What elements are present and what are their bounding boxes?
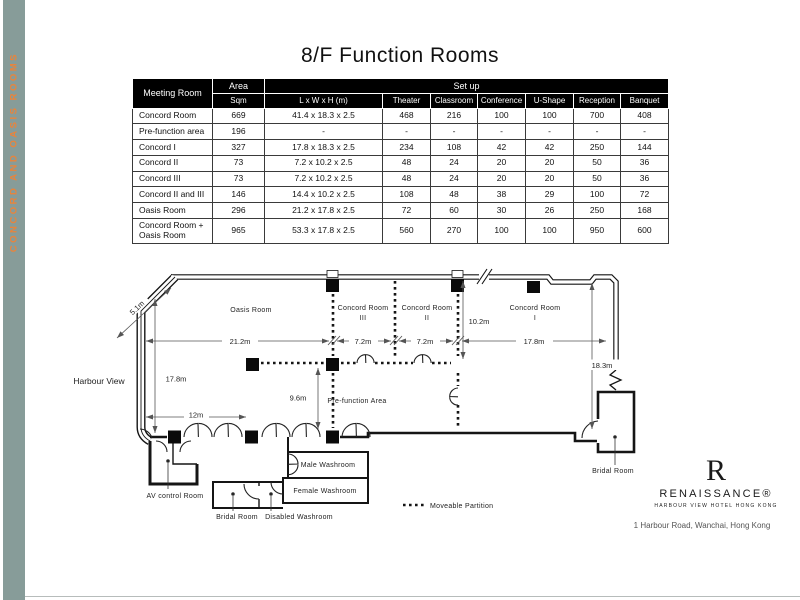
floor-plan: 21.2m 7.2m 7.2m 17.8m 10.2m 17.8m 12m 9.… bbox=[0, 0, 800, 600]
dim-concord-height: 10.2m bbox=[469, 317, 490, 326]
label-av-control-room: AV control Room bbox=[147, 493, 204, 500]
av-room-inner bbox=[173, 441, 197, 464]
partition-door bbox=[450, 388, 458, 405]
logo-r-monogram: R bbox=[650, 456, 782, 486]
bridal-disabled-door bbox=[244, 484, 259, 499]
label-concord-2-num: II bbox=[425, 315, 430, 322]
label-female-washroom: Female Washroom bbox=[293, 488, 356, 495]
bridal-door bbox=[582, 421, 598, 438]
label-concord-room-2: Concord Room bbox=[402, 305, 453, 312]
partition-door bbox=[357, 355, 374, 363]
column bbox=[246, 358, 259, 371]
leaders bbox=[167, 436, 617, 511]
label-concord-1-num: I bbox=[534, 315, 536, 322]
wall-break-squiggle bbox=[610, 370, 621, 390]
dim-left-width: 12m bbox=[189, 411, 204, 420]
wall-top-right bbox=[489, 277, 616, 370]
label-concord-3-num: III bbox=[360, 315, 367, 322]
columns bbox=[168, 279, 540, 444]
double-door bbox=[214, 423, 242, 437]
bridal-right-walls bbox=[598, 392, 634, 452]
page: CONCORD AND OASIS ROOMS 8/F Function Roo… bbox=[0, 0, 800, 600]
dim-concord3-width: 7.2m bbox=[355, 337, 372, 346]
label-concord-room-1: Concord Room bbox=[510, 305, 561, 312]
label-prefunction: Pre-function Area bbox=[327, 398, 386, 405]
label-disabled-washroom: Disabled Washroom bbox=[265, 514, 333, 521]
bottom-divider bbox=[25, 596, 800, 598]
logo-brand-name: RENAISSANCE® bbox=[650, 488, 782, 500]
label-oasis-room: Oasis Room bbox=[230, 307, 272, 314]
window-walls bbox=[141, 269, 621, 441]
column bbox=[168, 431, 181, 444]
washroom-door bbox=[288, 454, 298, 475]
partition-door bbox=[414, 355, 431, 363]
wall-bottom-right bbox=[340, 433, 597, 441]
double-door bbox=[292, 423, 320, 437]
hotel-logo: R RENAISSANCE® HARBOUR VIEW HOTEL HONG K… bbox=[650, 456, 782, 509]
dim-right-height: 18.3m bbox=[592, 361, 613, 370]
dim-oasis-width: 21.2m bbox=[230, 337, 251, 346]
dim-left-height: 17.8m bbox=[166, 375, 187, 384]
bridal-disabled-door bbox=[271, 482, 283, 494]
label-bridal-room: Bridal Room bbox=[216, 514, 258, 521]
dim-concord2-width: 7.2m bbox=[417, 337, 434, 346]
dim-mid-height: 9.6m bbox=[290, 394, 307, 403]
av-door bbox=[156, 441, 167, 452]
wall-tab bbox=[327, 271, 338, 278]
label-bridal-room-right: Bridal Room bbox=[592, 468, 634, 475]
label-harbour-view: Harbour View bbox=[73, 376, 125, 386]
double-door bbox=[184, 423, 212, 437]
label-male-washroom: Male Washroom bbox=[301, 462, 356, 469]
wall-tab bbox=[452, 271, 463, 278]
av-door bbox=[180, 441, 191, 452]
label-concord-room-3: Concord Room bbox=[338, 305, 389, 312]
interior-walls bbox=[150, 392, 634, 508]
column bbox=[326, 358, 339, 371]
legend-label: Moveable Partition bbox=[430, 503, 493, 510]
column bbox=[527, 281, 540, 293]
column bbox=[245, 431, 258, 444]
logo-tagline: HARBOUR VIEW HOTEL HONG KONG bbox=[650, 503, 782, 509]
column bbox=[326, 279, 339, 292]
dim-concord1-width: 17.8m bbox=[524, 337, 545, 346]
bridal-disabled-walls bbox=[213, 482, 283, 508]
double-door bbox=[342, 423, 370, 437]
hotel-address: 1 Harbour Road, Wanchai, Hong Kong bbox=[612, 521, 792, 530]
double-door bbox=[262, 423, 290, 437]
column bbox=[451, 279, 464, 292]
column bbox=[326, 431, 339, 444]
